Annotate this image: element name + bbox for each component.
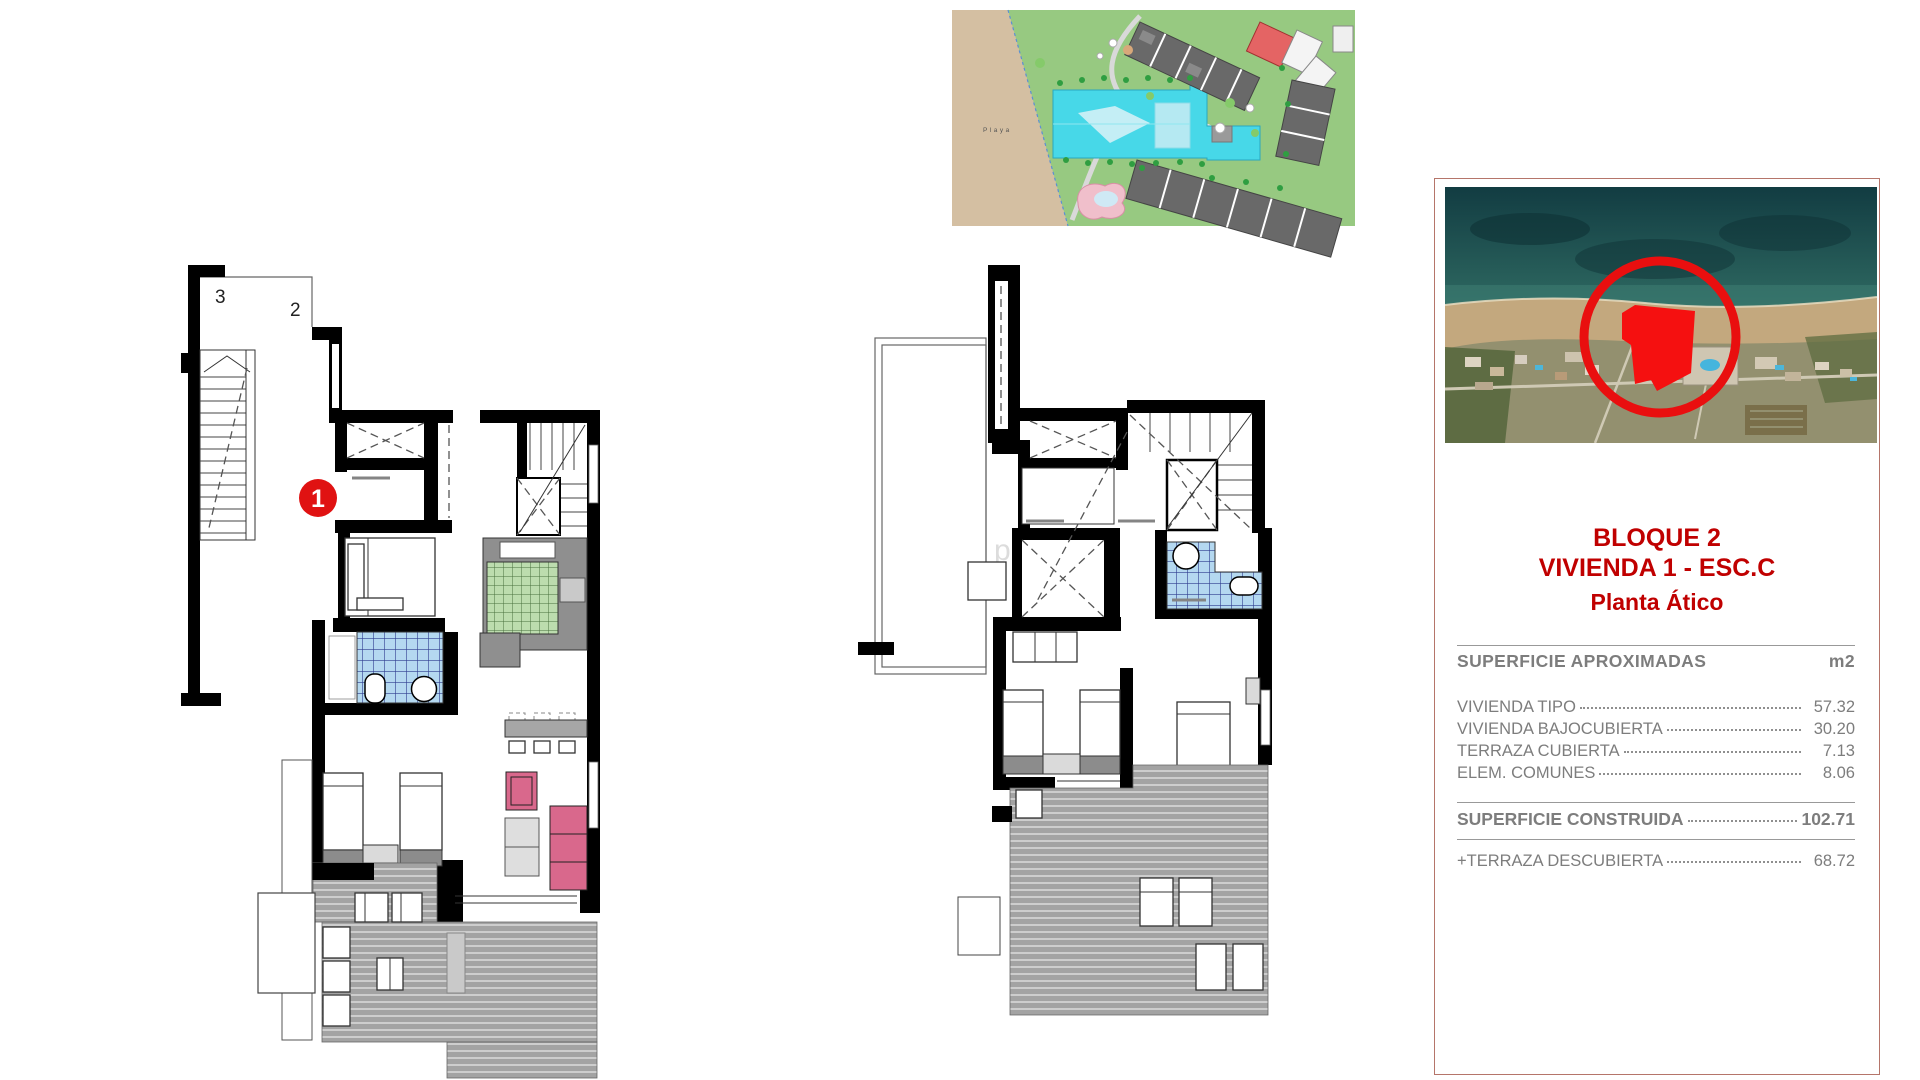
washbasin [1173,543,1199,569]
beach-label: Playa [983,127,1012,134]
area-row: TERRAZA CUBIERTA 7.13 [1457,742,1855,764]
terrace-deck [992,765,1268,1015]
svg-text:1: 1 [311,485,325,513]
kids-pool [1078,183,1126,219]
area-row: VIVIENDA TIPO 57.32 [1457,698,1855,720]
sun-lounger [1179,878,1212,926]
area-value: 8.06 [1805,764,1855,783]
total-label: SUPERFICIE CONSTRUIDA [1457,809,1684,830]
aerial-photo [1445,187,1877,443]
info-panel: BLOQUE 2 VIVIENDA 1 - ESC.C Planta Ático… [1434,178,1880,1075]
sun-lounger [392,893,422,922]
floor-title: Planta Ático [1435,587,1879,617]
site-plan-map: Playa [952,10,1355,257]
areas-unit: m2 [1829,651,1855,672]
total-row: SUPERFICIE CONSTRUIDA 102.71 [1457,803,1855,839]
total-value: 102.71 [1801,809,1855,830]
sun-lounger [323,961,350,992]
sun-lounger [1233,944,1263,990]
bedroom-twin [1003,632,1120,774]
washbasin [412,677,437,702]
sun-lounger [323,995,350,1026]
void-shaft [347,423,424,458]
area-label: VIVIENDA TIPO [1457,698,1576,717]
wardrobe [1013,632,1077,662]
room-label-3: 3 [215,287,226,308]
area-value: 30.20 [1805,720,1855,739]
dining-set [505,713,587,753]
lounge-set [505,772,587,890]
kitchen [480,538,587,667]
floor-plan-atico: 3 2 1 [181,265,600,1078]
side-balcony [958,897,1000,955]
sun-lounger [1196,944,1226,990]
plan-sheet: Playa [0,0,1920,1080]
staircase-upper [517,423,587,535]
bathroom [1167,542,1262,609]
bedroom-twin [323,773,442,866]
block-title: BLOQUE 2 [1435,523,1879,553]
bedroom-single [1177,678,1260,772]
area-label: VIVIENDA BAJOCUBIERTA [1457,720,1663,739]
sun-lounger [355,893,388,922]
area-row: ELEM. COMUNES 8.06 [1457,764,1855,786]
sofa [550,806,587,890]
closet [1022,468,1114,524]
areas-header: SUPERFICIE APROXIMADAS [1457,651,1706,672]
extra-row: +TERRAZA DESCUBIERTA 68.72 [1457,852,1855,871]
open-terrace [875,338,986,674]
area-label: TERRAZA CUBIERTA [1457,742,1620,761]
bathroom [325,632,443,703]
unit-number-badge: 1 [299,479,337,517]
area-row: VIVIENDA BAJOCUBIERTA 30.20 [1457,720,1855,742]
terrace-table [968,562,1006,600]
extra-label: +TERRAZA DESCUBIERTA [1457,852,1663,871]
plan-title-block: BLOQUE 2 VIVIENDA 1 - ESC.C Planta Ático [1435,523,1879,617]
sun-lounger [323,927,350,958]
void-shaft [1030,421,1116,458]
area-label: ELEM. COMUNES [1457,764,1595,783]
bedroom-double [345,538,435,616]
deck-table [1016,790,1042,818]
floor-plan-bajocubierta [858,265,1272,1015]
extra-value: 68.72 [1805,852,1855,871]
staircase-main [200,350,255,540]
dwelling-title: VIVIENDA 1 - ESC.C [1435,553,1879,583]
sun-lounger [1140,878,1173,926]
staircase-upper [1130,413,1252,530]
toilet [365,674,385,703]
areas-table: SUPERFICIE APROXIMADAS m2 VIVIENDA TIPO … [1457,645,1855,871]
toilet [1230,577,1258,595]
room-label-2: 2 [290,300,301,321]
area-value: 57.32 [1805,698,1855,717]
area-value: 7.13 [1805,742,1855,761]
